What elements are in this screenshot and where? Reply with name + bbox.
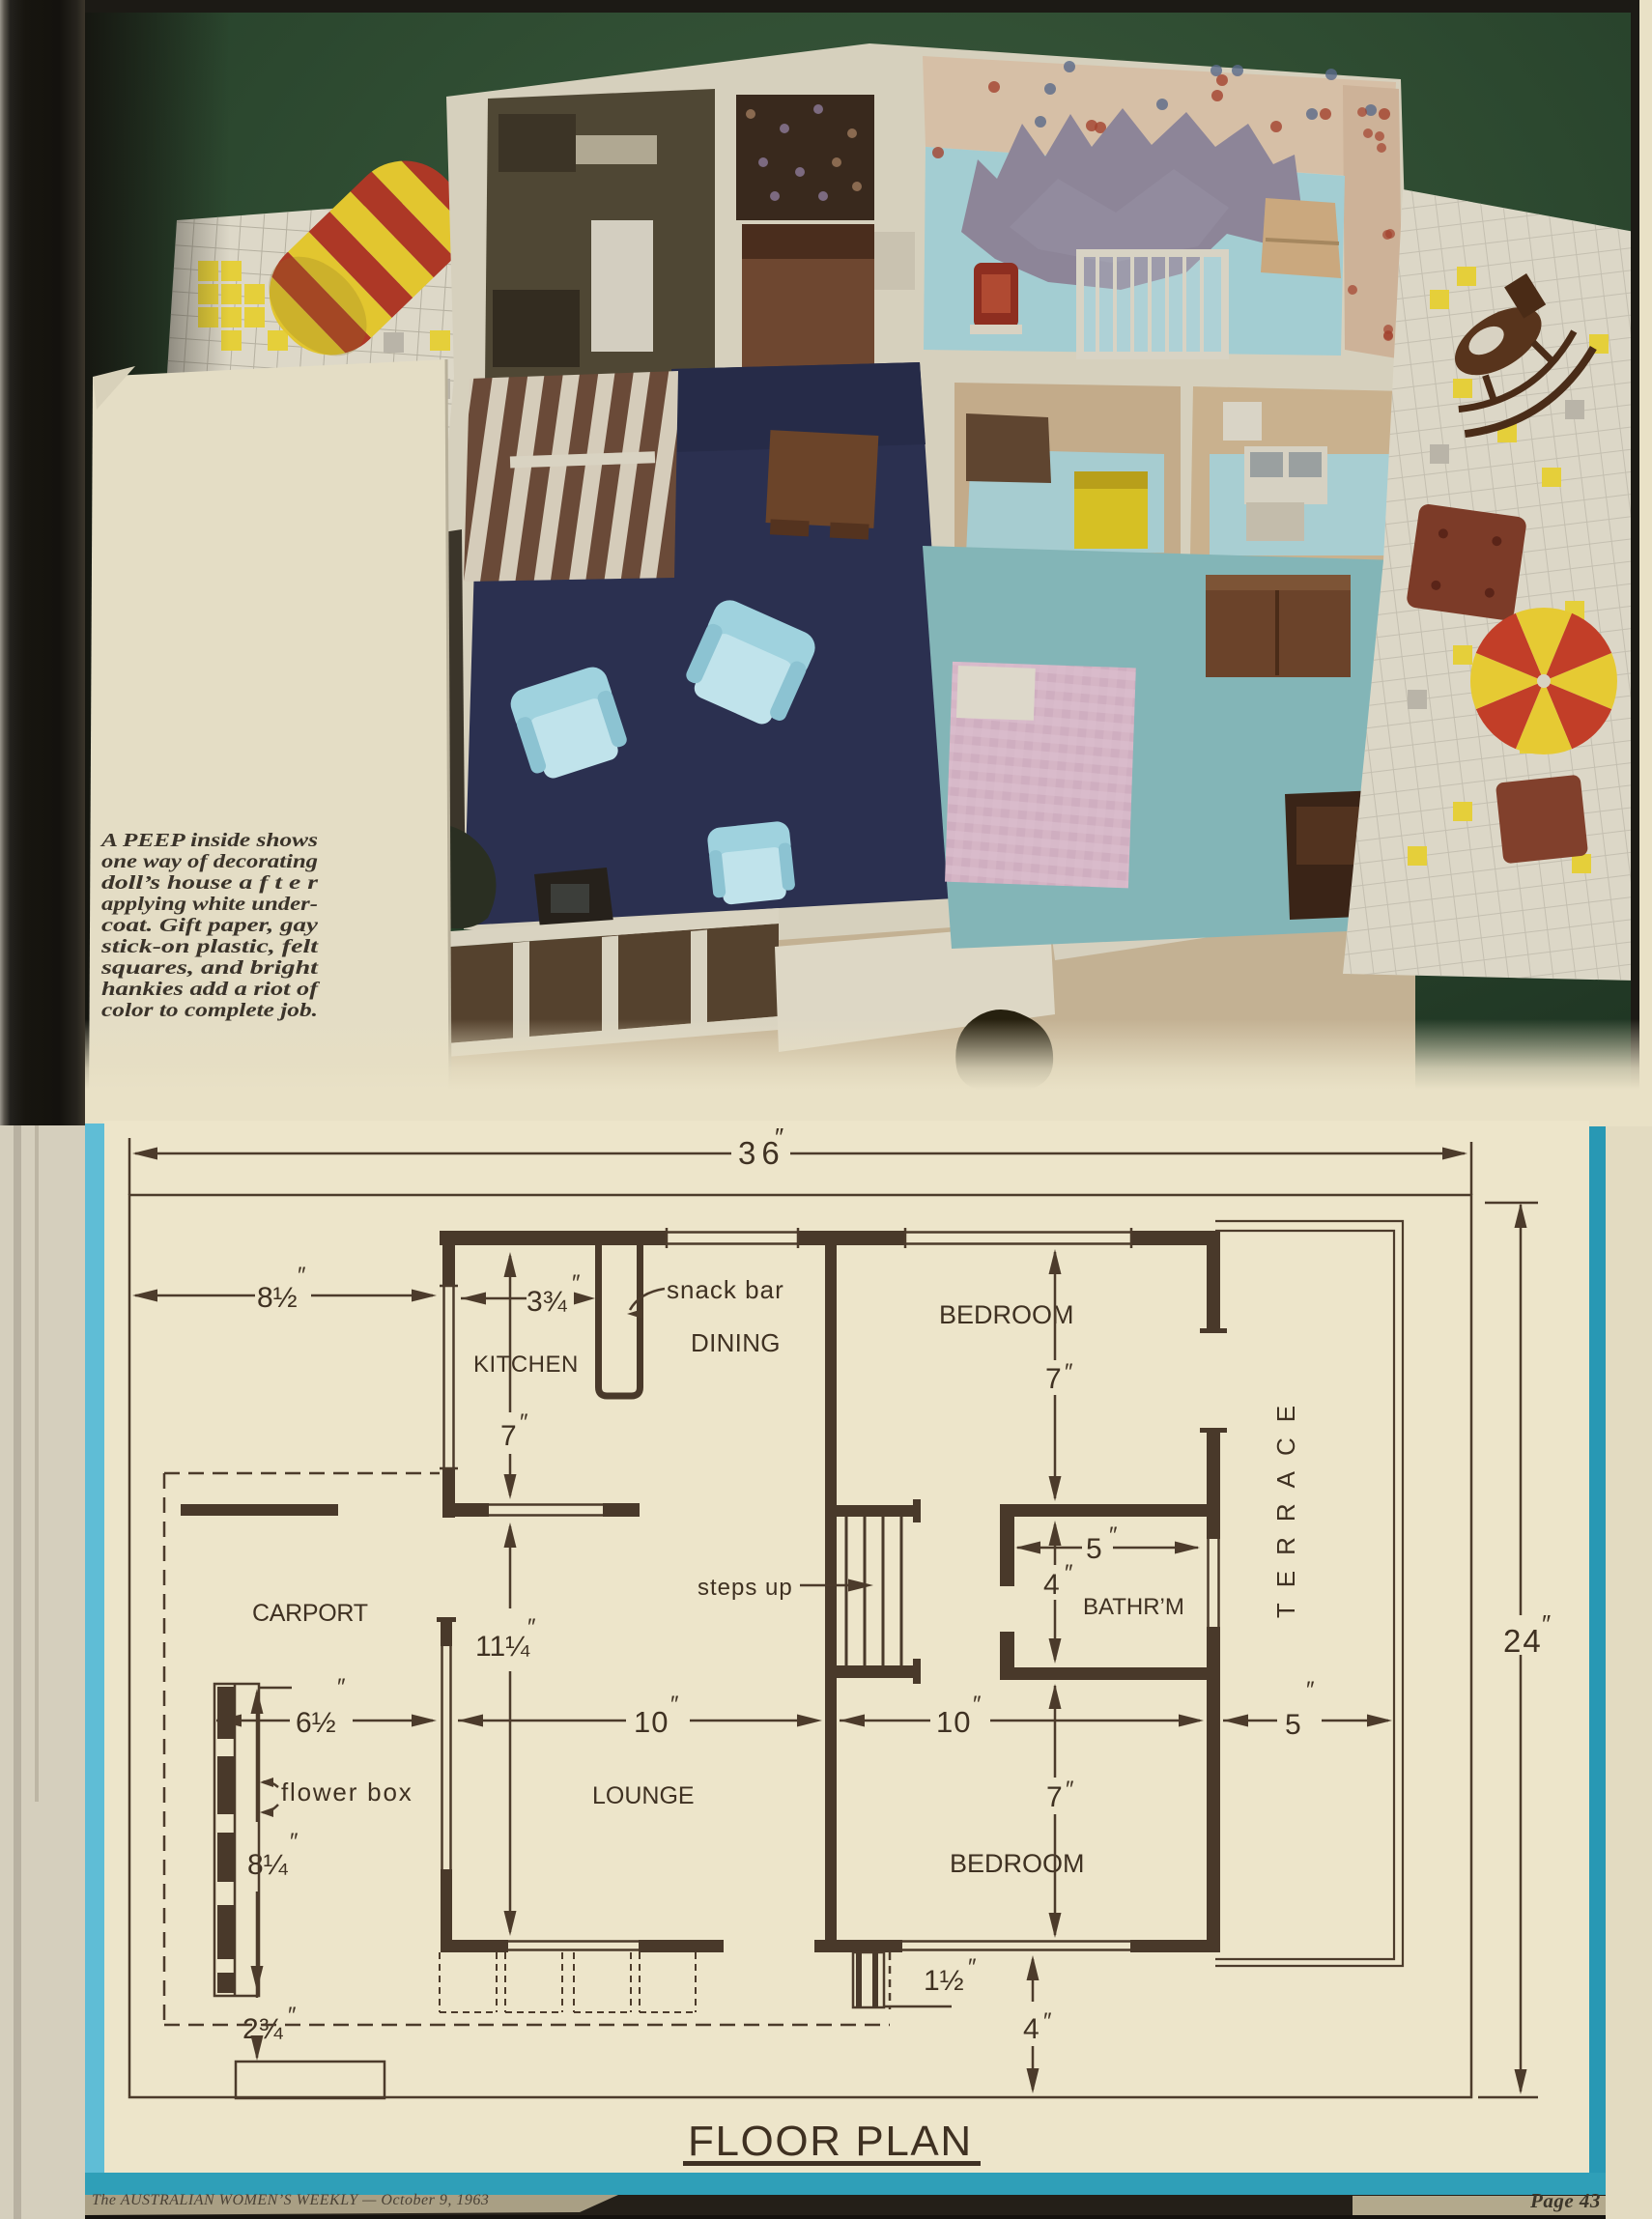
svg-text:″: ″	[973, 1692, 982, 1718]
svg-text:2¾: 2¾	[242, 2013, 284, 2045]
svg-text:A PEEP inside shows: A PEEP inside shows	[99, 830, 318, 851]
svg-text:BATHR’M: BATHR’M	[1083, 1594, 1184, 1620]
svg-text:stick-on plastic, felt: stick-on plastic, felt	[100, 936, 320, 957]
svg-text:7: 7	[500, 1420, 517, 1452]
svg-text:coat. Gift paper, gay: coat. Gift paper, gay	[101, 915, 318, 936]
svg-text:″: ″	[298, 1263, 306, 1289]
svg-text:applying white under-: applying white under-	[101, 894, 318, 915]
svg-text:BEDROOM: BEDROOM	[950, 1849, 1085, 1878]
svg-text:KITCHEN: KITCHEN	[473, 1351, 579, 1378]
svg-text:6½: 6½	[296, 1707, 336, 1739]
svg-text:CARPORT: CARPORT	[252, 1600, 368, 1627]
svg-text:″: ″	[337, 1674, 346, 1700]
svg-text:7: 7	[1045, 1363, 1062, 1395]
svg-text:″: ″	[520, 1409, 528, 1436]
svg-text:5: 5	[1285, 1709, 1301, 1741]
svg-text:10: 10	[936, 1705, 971, 1739]
svg-text:3¾: 3¾	[527, 1286, 568, 1318]
svg-text:″: ″	[775, 1123, 783, 1152]
svg-text:TERRACE: TERRACE	[1271, 1390, 1300, 1618]
svg-text:″: ″	[1065, 1359, 1073, 1385]
svg-text:8¼: 8¼	[247, 1849, 289, 1881]
svg-text:hankies add a riot of: hankies add a riot of	[101, 979, 321, 1000]
svg-text:steps up: steps up	[698, 1575, 793, 1601]
svg-text:5: 5	[1086, 1533, 1102, 1565]
svg-text:doll’s house a f t e r: doll’s house a f t e r	[101, 872, 318, 894]
svg-text:″: ″	[1306, 1677, 1315, 1703]
svg-text:Page 43: Page 43	[1529, 2189, 1601, 2212]
svg-text:4: 4	[1043, 1569, 1060, 1601]
svg-text:″: ″	[968, 1954, 977, 1980]
svg-text:″: ″	[1542, 1609, 1551, 1638]
svg-text:LOUNGE: LOUNGE	[592, 1782, 695, 1809]
svg-text:color to complete job.: color to complete job.	[101, 1000, 318, 1021]
svg-text:″: ″	[1043, 2008, 1052, 2034]
svg-text:″: ″	[290, 1829, 299, 1855]
svg-text:11¼: 11¼	[475, 1631, 530, 1663]
svg-text:″: ″	[527, 1614, 536, 1640]
svg-text:snack bar: snack bar	[667, 1275, 784, 1304]
svg-text:″: ″	[1065, 1560, 1073, 1586]
svg-text:″: ″	[572, 1270, 581, 1296]
svg-text:squares, and bright: squares, and bright	[100, 957, 320, 979]
svg-text:8½: 8½	[257, 1282, 298, 1314]
svg-text:flower box: flower box	[281, 1778, 413, 1806]
svg-text:7: 7	[1046, 1781, 1063, 1813]
svg-text:24: 24	[1503, 1623, 1543, 1659]
svg-text:DINING: DINING	[691, 1328, 781, 1357]
svg-text:″: ″	[1109, 1522, 1118, 1549]
svg-text:″: ″	[1066, 1777, 1074, 1803]
svg-text:FLOOR PLAN: FLOOR PLAN	[688, 2118, 973, 2165]
svg-text:10: 10	[634, 1705, 669, 1739]
svg-text:T​he A​USTRALIAN W​OMEN’S W​EE: T​he A​USTRALIAN W​OMEN’S W​EEKLY — Octo…	[92, 2192, 489, 2208]
svg-text:″: ″	[670, 1692, 679, 1718]
svg-text:one way of decorating: one way of decorating	[101, 851, 318, 872]
svg-text:BEDROOM: BEDROOM	[939, 1300, 1074, 1329]
svg-text:1½: 1½	[924, 1965, 964, 1997]
svg-text:4: 4	[1023, 2013, 1040, 2045]
